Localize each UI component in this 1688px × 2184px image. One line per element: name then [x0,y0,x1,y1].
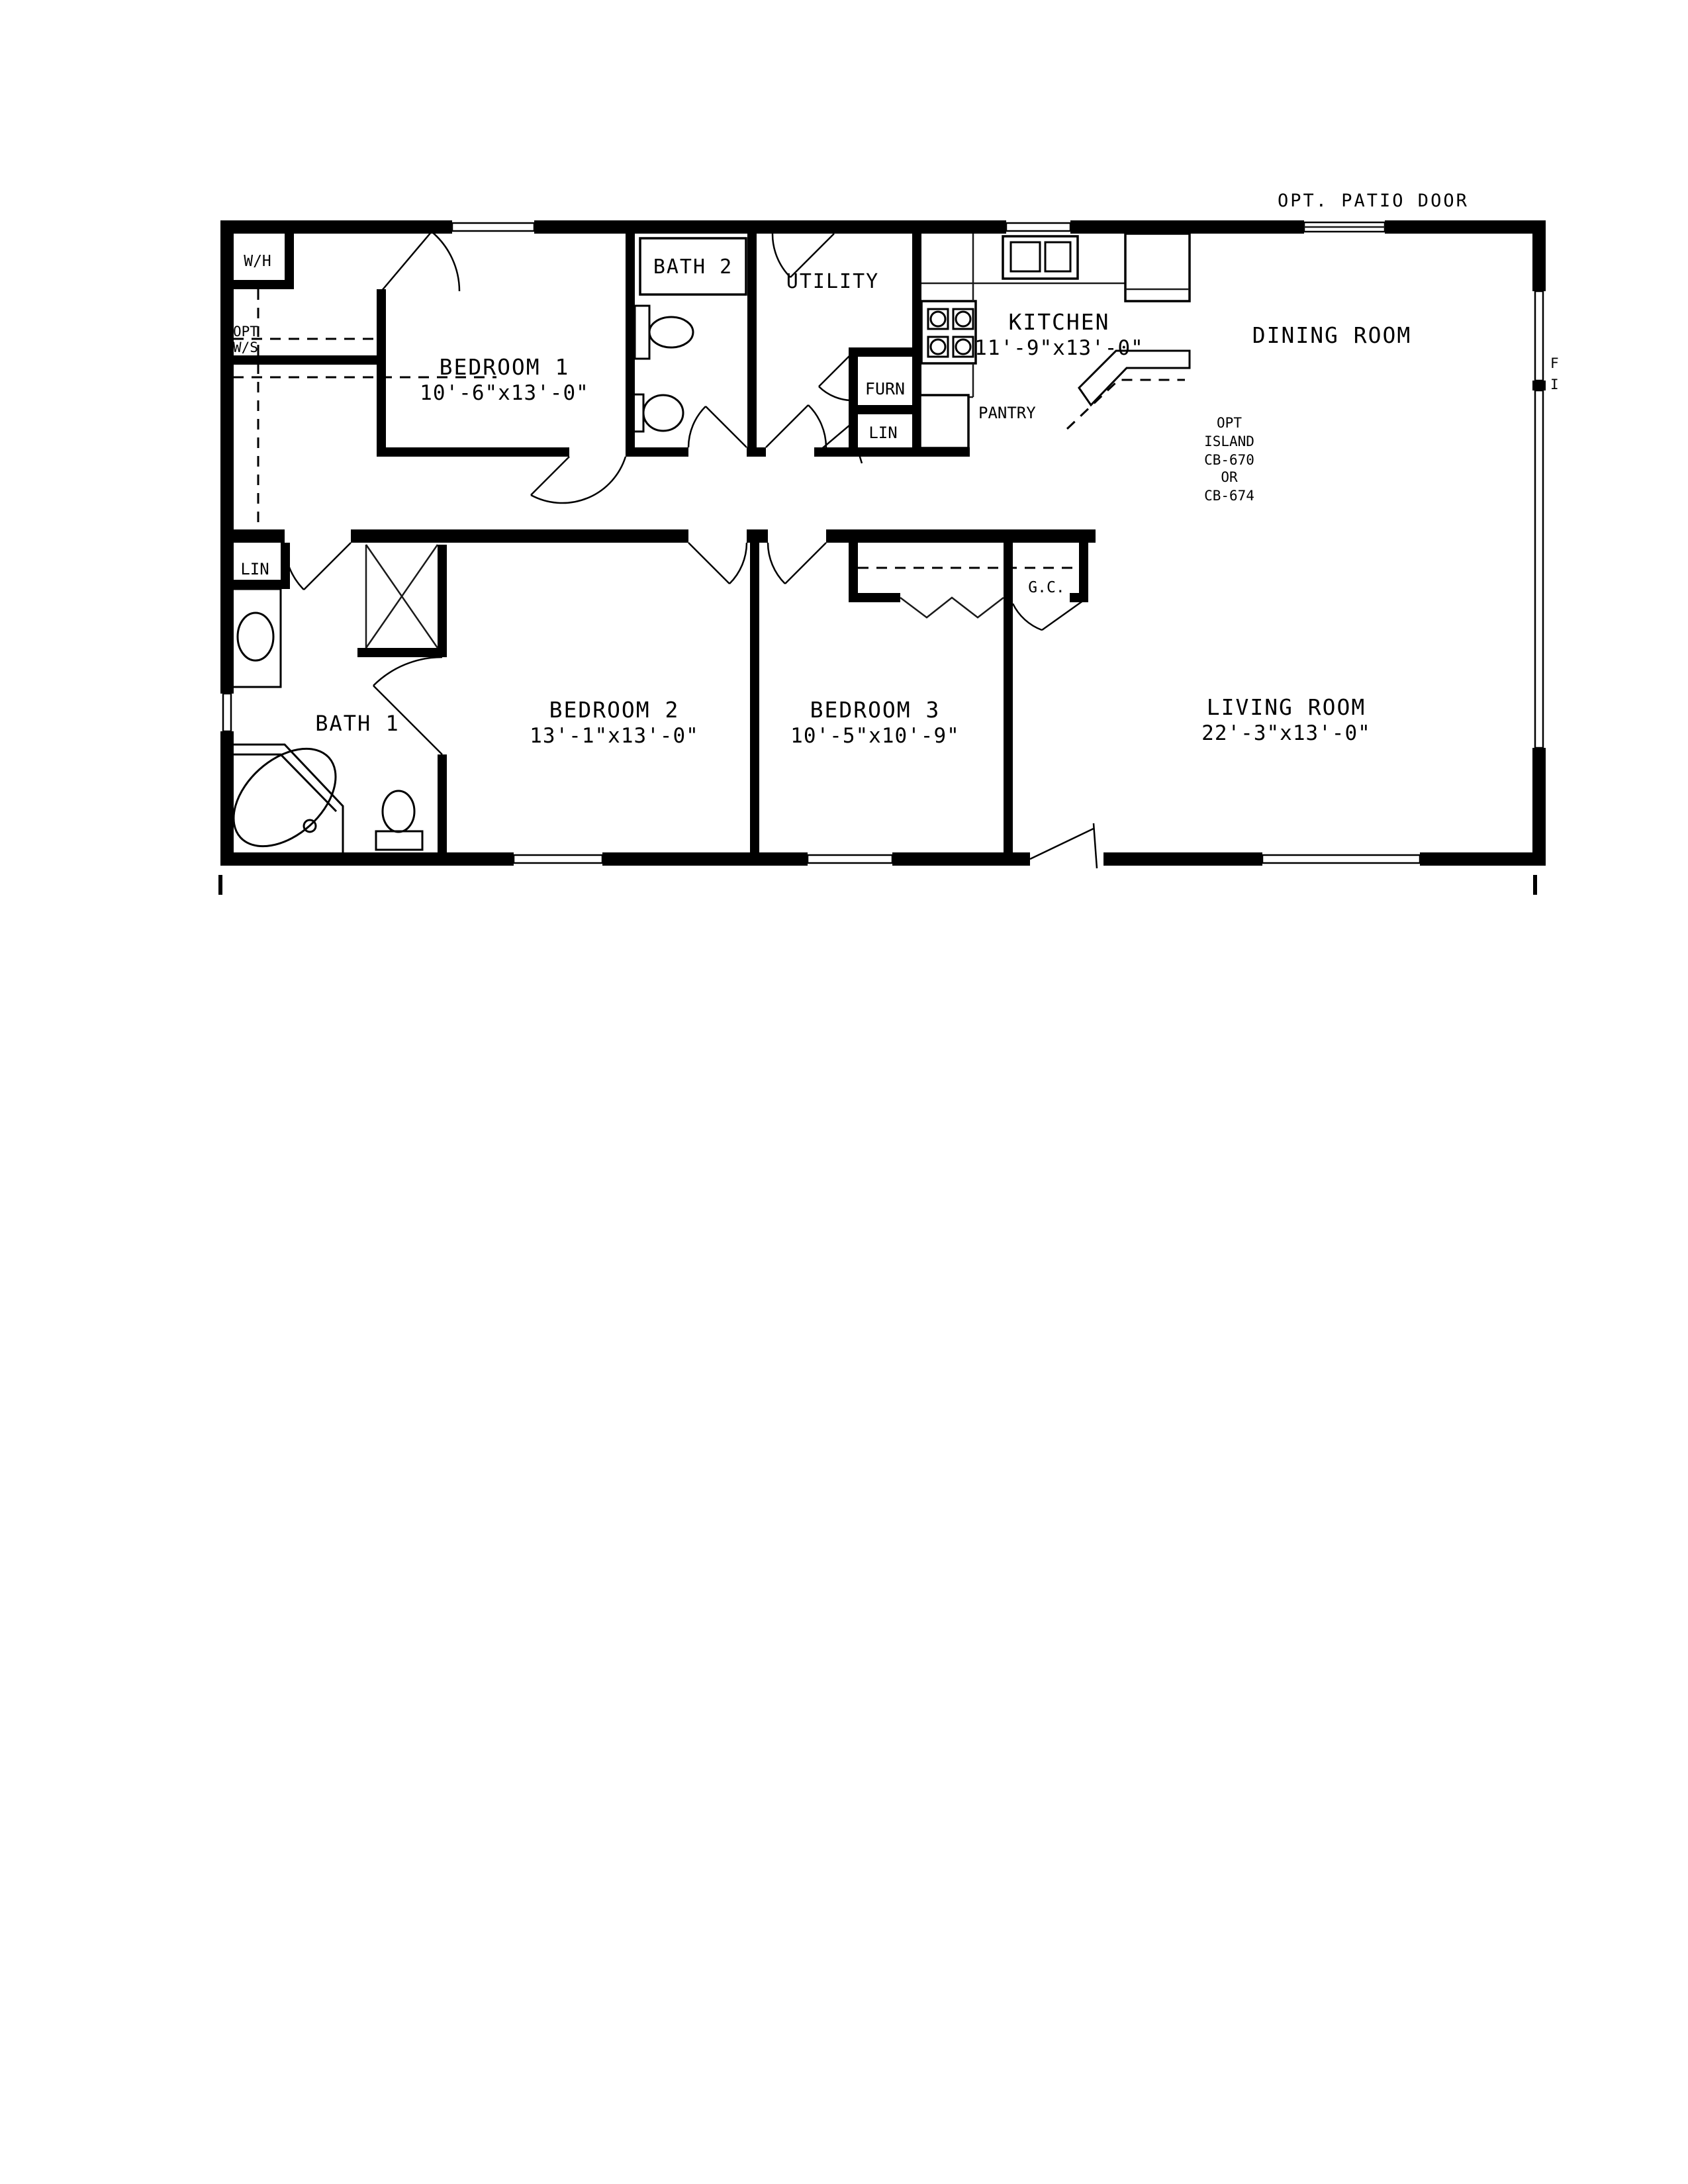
window-living [1262,855,1420,863]
bifold-doors [900,598,1004,617]
page-marks [218,875,1537,895]
bath2-sink [649,317,693,347]
ws-label: W/S [233,340,258,355]
bath2-vanity [635,306,649,359]
kitchen-name: KITCHEN [1008,309,1109,335]
bath1-sink [238,613,273,660]
kitchen-dims: 11'-9"x13'-0" [974,336,1144,360]
window-kitchen [1006,223,1070,231]
front-door-leaf [1030,829,1094,859]
bedroom2-name: BEDROOM 2 [549,697,680,723]
bath1-toilet-tank [376,831,422,850]
front-door-jamb [1094,823,1097,868]
edge-fragment-top: F [1550,355,1559,371]
window-bedroom1 [452,223,534,231]
door-arc-bedroom3 [768,543,785,584]
island-label-3: CB-670 [1204,452,1254,468]
garden-tub [215,729,354,865]
pantry-cabinet [920,395,968,448]
living-dims: 22'-3"x13'-0" [1201,721,1371,745]
dining-name: DINING ROOM [1252,322,1412,348]
floor-plan-drawing: OPT. PATIO DOOR BEDROOM 1 10'-6"x13'-0" … [0,0,1688,2184]
bath2-name: BATH 2 [653,255,733,279]
island-label-1: OPT [1217,415,1242,431]
window-bedroom3 [808,855,892,863]
door-arc-utility [808,405,826,447]
water-heater-label: W/H [244,253,271,270]
island-label-4: OR [1221,469,1238,485]
patio-door-label: OPT. PATIO DOOR [1278,191,1469,211]
door-arc-furnace [819,387,853,400]
furnace-label: FURN [865,379,905,398]
pantry-label: PANTRY [978,404,1036,422]
edge-fragment-bottom: I [1550,377,1559,392]
living-name: LIVING ROOM [1207,694,1366,720]
refrigerator [1125,234,1190,301]
door-arc-bedroom2 [729,543,747,584]
door-arc-guest-closet [1013,604,1042,630]
bedroom3-dims: 10'-5"x10'-9" [790,724,960,748]
linen-hall-label: LIN [868,424,897,442]
opt-label: OPT [233,324,258,340]
bedroom3-name: BEDROOM 3 [810,697,941,723]
exterior-walls [220,220,1546,866]
bedroom1-name: BEDROOM 1 [440,354,570,380]
window-dining [1535,291,1543,381]
linen-bath1-label: LIN [240,560,269,578]
utility-name: UTILITY [786,270,879,293]
bedroom1-dims: 10'-6"x13'-0" [420,381,589,405]
window-bedroom2 [514,855,602,863]
guest-closet-label: G.C. [1028,579,1064,596]
tick-mark-left [218,875,222,895]
door-arc-bath2 [688,406,706,447]
tick-mark-right [1533,875,1537,895]
bedroom2-dims: 13'-1"x13'-0" [530,724,699,748]
bath2-toilet-bowl [643,395,683,431]
island-label-2: ISLAND [1204,433,1254,449]
door-arc-bath1-bed2 [373,657,442,686]
opt-island-dashed [1067,380,1185,429]
bath1-name: BATH 1 [315,711,400,736]
window-living-side [1535,390,1543,748]
scanned-floor-plan-page: OPT. PATIO DOOR BEDROOM 1 10'-6"x13'-0" … [0,0,1688,2184]
door-arc-bedroom1-closet [432,232,459,291]
text-labels: OPT. PATIO DOOR BEDROOM 1 10'-6"x13'-0" … [233,191,1559,748]
window-bath1 [223,694,231,731]
bath1-toilet-bowl [383,791,414,832]
island-label-5: CB-674 [1204,488,1254,504]
